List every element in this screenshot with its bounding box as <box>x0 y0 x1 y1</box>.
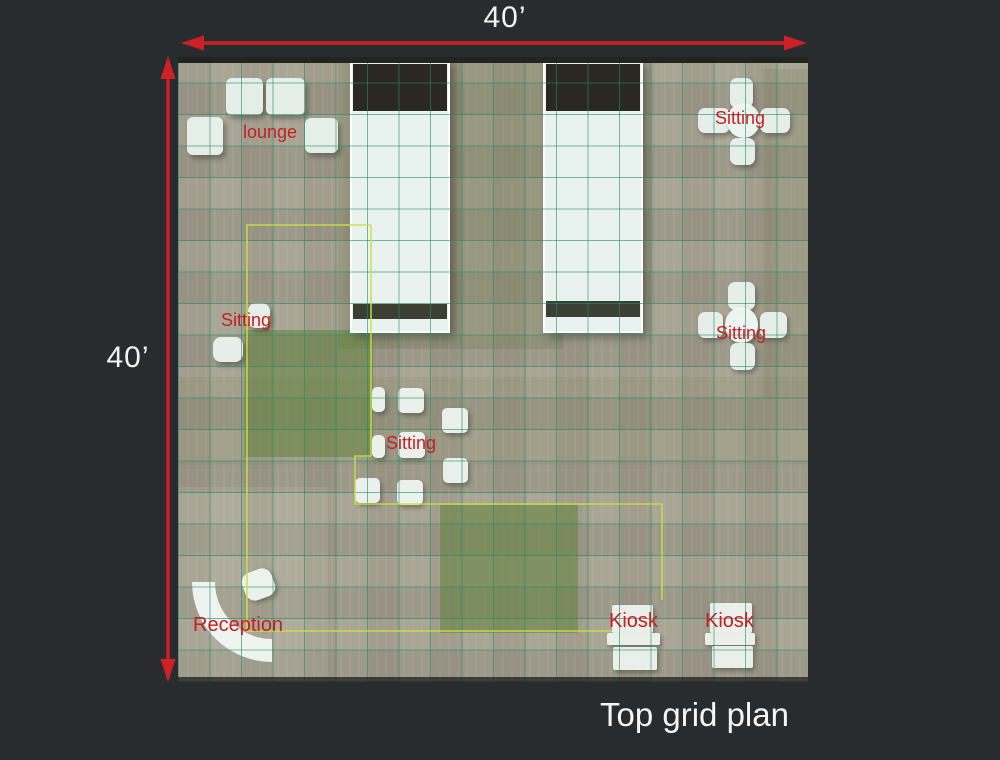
sitting-chair <box>213 337 243 362</box>
lounge-sofa <box>226 78 263 115</box>
display-structure-right <box>543 60 643 333</box>
label-reception: Reception <box>193 614 283 637</box>
chair <box>372 435 385 458</box>
label-sitting-bottom-right: Sitting <box>716 323 766 344</box>
plan-top-edge <box>178 57 808 63</box>
dimension-height-label: 40’ <box>98 341 158 375</box>
label-kiosk-1: Kiosk <box>609 610 658 633</box>
kiosk-shelf <box>607 633 660 645</box>
dark-bench-panel <box>546 301 640 317</box>
top-grid-plan-figure: 40’ 40’ <box>0 0 1000 760</box>
label-sitting-center: Sitting <box>386 433 436 454</box>
dark-header-panel <box>353 64 447 111</box>
chair <box>398 388 424 413</box>
plan-caption: Top grid plan <box>600 696 789 734</box>
chair <box>355 478 380 503</box>
lounge-sofa <box>266 78 305 115</box>
chair <box>397 480 423 505</box>
chair <box>372 387 385 412</box>
green-carpet-left <box>245 330 373 457</box>
label-kiosk-2: Kiosk <box>705 610 754 633</box>
chair <box>443 458 468 483</box>
display-structure-left <box>350 60 450 333</box>
label-sitting-top-right: Sitting <box>715 108 765 129</box>
plan-bottom-edge <box>178 677 808 682</box>
kiosk-shelf <box>705 633 755 645</box>
chair <box>730 343 755 370</box>
dimension-width-label: 40’ <box>460 1 550 35</box>
dark-bench-panel <box>353 304 447 319</box>
chair <box>730 138 755 165</box>
label-sitting-left: Sitting <box>221 310 271 331</box>
chair <box>442 408 468 433</box>
floor-plan: lounge Sitting Sitting Sitting Sitting R… <box>178 57 808 682</box>
dark-header-panel <box>546 64 640 111</box>
label-lounge: lounge <box>243 122 297 143</box>
green-carpet-bottom <box>440 505 578 633</box>
reception-stool <box>239 566 278 604</box>
lounge-armchair <box>305 118 338 153</box>
kiosk-counter <box>712 646 753 668</box>
lounge-armchair <box>187 117 223 155</box>
chair <box>728 282 755 310</box>
kiosk-counter <box>613 647 657 670</box>
